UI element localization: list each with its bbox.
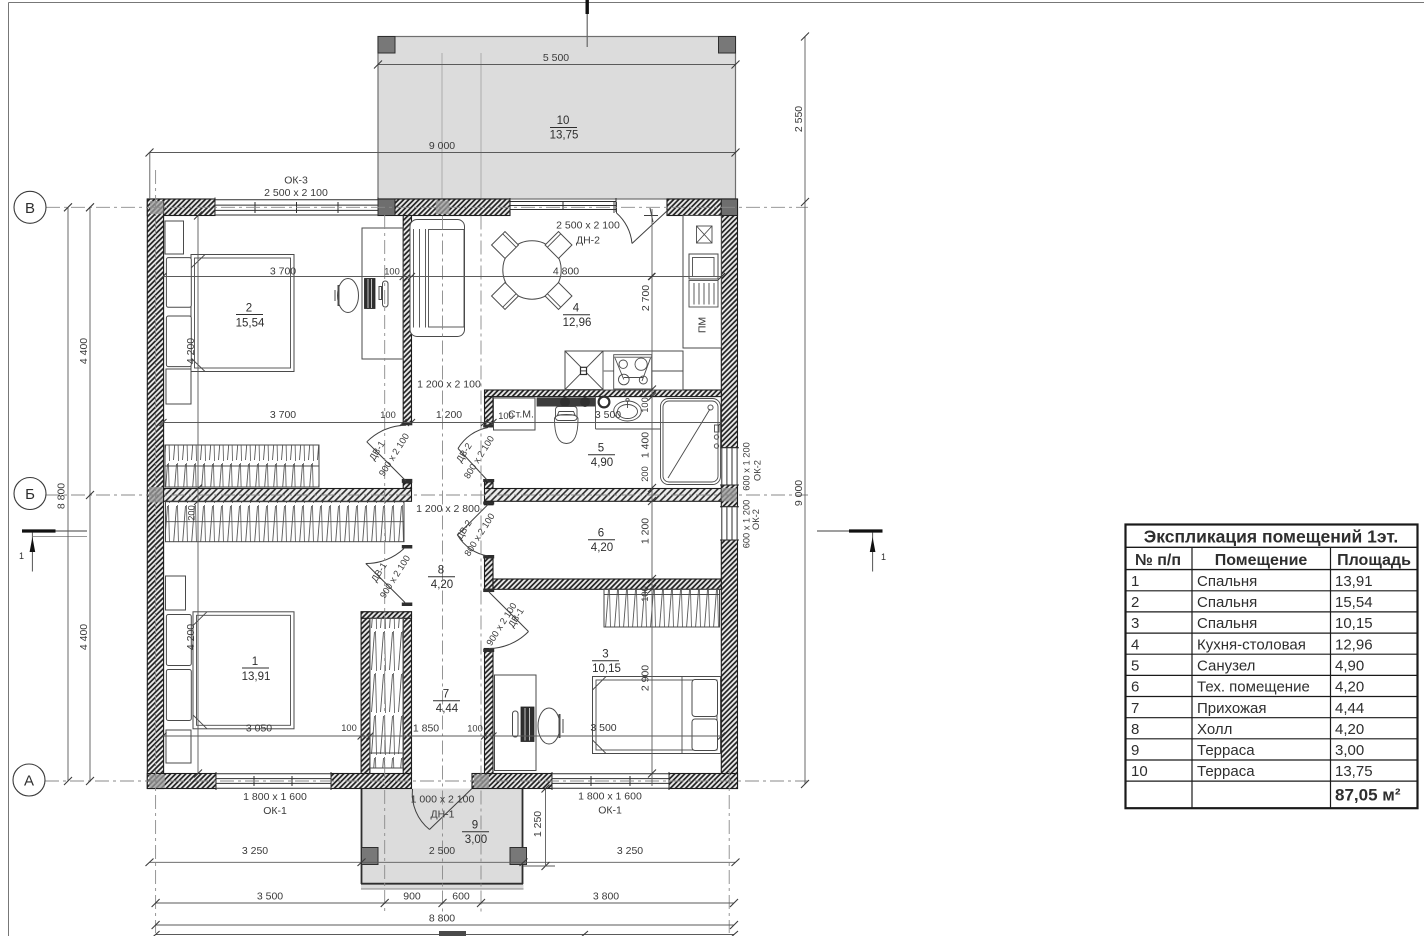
svg-text:Спальня: Спальня [1197, 573, 1257, 590]
svg-text:В: В [25, 200, 35, 217]
svg-text:5: 5 [1131, 658, 1139, 675]
svg-text:2 550: 2 550 [793, 106, 805, 132]
svg-text:4: 4 [573, 303, 580, 315]
svg-text:1 200: 1 200 [436, 409, 462, 421]
svg-text:3,00: 3,00 [1335, 742, 1364, 759]
svg-text:1 800 x 1 600: 1 800 x 1 600 [243, 791, 307, 803]
svg-text:100: 100 [341, 723, 357, 733]
svg-text:Тех. помещение: Тех. помещение [1197, 679, 1310, 696]
svg-text:Площадь: Площадь [1337, 552, 1411, 569]
svg-text:1: 1 [252, 656, 258, 668]
svg-text:ПМ: ПМ [697, 317, 709, 333]
svg-text:6: 6 [1131, 679, 1139, 696]
svg-text:5 500: 5 500 [543, 52, 569, 64]
svg-text:ДН-2: ДН-2 [576, 235, 600, 247]
svg-text:900: 900 [403, 891, 421, 903]
svg-text:7: 7 [443, 689, 449, 701]
svg-text:1 000 x 2 100: 1 000 x 2 100 [411, 794, 475, 806]
svg-text:2: 2 [1131, 594, 1139, 611]
svg-text:4,44: 4,44 [436, 703, 459, 715]
svg-text:Терраса: Терраса [1197, 763, 1255, 780]
svg-text:13,75: 13,75 [550, 130, 579, 142]
svg-text:4,20: 4,20 [591, 542, 613, 554]
svg-text:ОК-3: ОК-3 [284, 175, 308, 187]
svg-text:3 500: 3 500 [590, 722, 616, 734]
svg-text:1: 1 [19, 551, 24, 561]
svg-text:3 500: 3 500 [595, 409, 621, 421]
svg-text:3,00: 3,00 [465, 834, 487, 846]
svg-text:Б: Б [25, 486, 35, 503]
svg-text:3 250: 3 250 [617, 845, 643, 857]
svg-text:1 200: 1 200 [639, 518, 651, 544]
svg-text:10: 10 [1131, 763, 1148, 780]
svg-text:1 850: 1 850 [413, 723, 439, 735]
svg-text:15,54: 15,54 [236, 318, 265, 330]
svg-text:4: 4 [1131, 636, 1139, 653]
svg-text:15,54: 15,54 [1335, 594, 1373, 611]
svg-text:13,75: 13,75 [1335, 763, 1373, 780]
svg-text:6: 6 [598, 528, 604, 540]
svg-text:2 900: 2 900 [639, 665, 651, 691]
svg-text:2: 2 [246, 303, 252, 315]
svg-text:100: 100 [384, 267, 400, 277]
svg-text:1 800 x 1 600: 1 800 x 1 600 [578, 791, 642, 803]
svg-text:3: 3 [1131, 615, 1139, 632]
svg-text:2 700: 2 700 [640, 285, 652, 311]
svg-text:100: 100 [467, 724, 483, 734]
svg-text:9: 9 [472, 820, 478, 832]
svg-text:4,20: 4,20 [1335, 721, 1364, 738]
svg-text:8 800: 8 800 [429, 913, 455, 925]
svg-text:8 800: 8 800 [55, 483, 67, 509]
svg-text:3 700: 3 700 [270, 266, 296, 278]
svg-text:1 400: 1 400 [639, 432, 651, 458]
svg-text:Помещение: Помещение [1215, 552, 1308, 569]
svg-text:1 250: 1 250 [532, 811, 544, 837]
svg-text:100: 100 [640, 397, 650, 413]
svg-text:4,20: 4,20 [431, 579, 453, 591]
svg-text:Спальня: Спальня [1197, 615, 1257, 632]
svg-text:Спальня: Спальня [1197, 594, 1257, 611]
svg-text:2 500 x 2 100: 2 500 x 2 100 [264, 187, 328, 199]
svg-text:4,90: 4,90 [1335, 658, 1364, 675]
svg-text:Холл: Холл [1197, 721, 1232, 738]
svg-text:Прихожая: Прихожая [1197, 700, 1267, 717]
svg-text:ДН-1: ДН-1 [430, 809, 454, 821]
svg-text:А: А [24, 773, 34, 790]
svg-text:4 800: 4 800 [553, 266, 579, 278]
svg-text:ОК-1: ОК-1 [598, 805, 622, 817]
svg-text:4,90: 4,90 [591, 457, 613, 469]
svg-text:ОК-2: ОК-2 [751, 509, 761, 530]
svg-text:10,15: 10,15 [1335, 615, 1373, 632]
svg-text:9 000: 9 000 [429, 140, 455, 152]
svg-text:Кухня-столовая: Кухня-столовая [1197, 636, 1306, 653]
svg-text:5: 5 [598, 443, 604, 455]
svg-text:1 200 x 2 100: 1 200 x 2 100 [417, 379, 481, 391]
svg-text:600 x 1 200: 600 x 1 200 [741, 500, 751, 549]
svg-text:1: 1 [881, 552, 886, 562]
svg-text:4 200: 4 200 [185, 338, 197, 364]
svg-text:Ст.М.: Ст.М. [508, 409, 534, 421]
svg-text:Экспликация помещений 1эт.: Экспликация помещений 1эт. [1144, 527, 1398, 547]
svg-text:200: 200 [640, 466, 650, 482]
svg-text:10,15: 10,15 [592, 663, 621, 675]
svg-text:3 050: 3 050 [246, 723, 272, 735]
svg-text:3 700: 3 700 [270, 409, 296, 421]
svg-text:1 200 x 2 800: 1 200 x 2 800 [416, 503, 480, 515]
svg-text:3: 3 [602, 649, 608, 661]
svg-text:8: 8 [438, 565, 444, 577]
svg-text:100: 100 [640, 586, 650, 602]
svg-text:1: 1 [1131, 573, 1139, 590]
svg-text:3 250: 3 250 [242, 845, 268, 857]
svg-text:12,96: 12,96 [1335, 636, 1373, 653]
svg-text:ОК-2: ОК-2 [752, 460, 762, 481]
svg-text:12,96: 12,96 [563, 317, 592, 329]
svg-text:8: 8 [1131, 721, 1139, 738]
svg-text:13,91: 13,91 [242, 671, 271, 683]
svg-text:200: 200 [186, 505, 196, 521]
svg-text:4 400: 4 400 [78, 338, 90, 364]
svg-text:3 500: 3 500 [257, 891, 283, 903]
svg-text:2 500: 2 500 [429, 845, 455, 857]
svg-text:87,05 м²: 87,05 м² [1335, 786, 1401, 805]
svg-text:4 200: 4 200 [185, 624, 197, 650]
svg-text:№ п/п: № п/п [1135, 552, 1181, 569]
svg-text:100: 100 [380, 410, 396, 420]
svg-text:9 000: 9 000 [793, 480, 805, 506]
svg-text:Санузел: Санузел [1197, 658, 1255, 675]
svg-text:9: 9 [1131, 742, 1139, 759]
svg-text:Терраса: Терраса [1197, 742, 1255, 759]
svg-text:2 500 x 2 100: 2 500 x 2 100 [556, 220, 620, 232]
svg-text:7: 7 [1131, 700, 1139, 717]
svg-text:4 400: 4 400 [78, 624, 90, 650]
svg-text:ОК-1: ОК-1 [263, 805, 287, 817]
svg-text:4,44: 4,44 [1335, 700, 1364, 717]
svg-text:3 800: 3 800 [593, 891, 619, 903]
svg-text:13,91: 13,91 [1335, 573, 1373, 590]
svg-text:600: 600 [452, 891, 470, 903]
svg-text:4,20: 4,20 [1335, 679, 1364, 696]
svg-text:600 x 1 200: 600 x 1 200 [741, 442, 751, 491]
svg-text:10: 10 [557, 115, 570, 127]
